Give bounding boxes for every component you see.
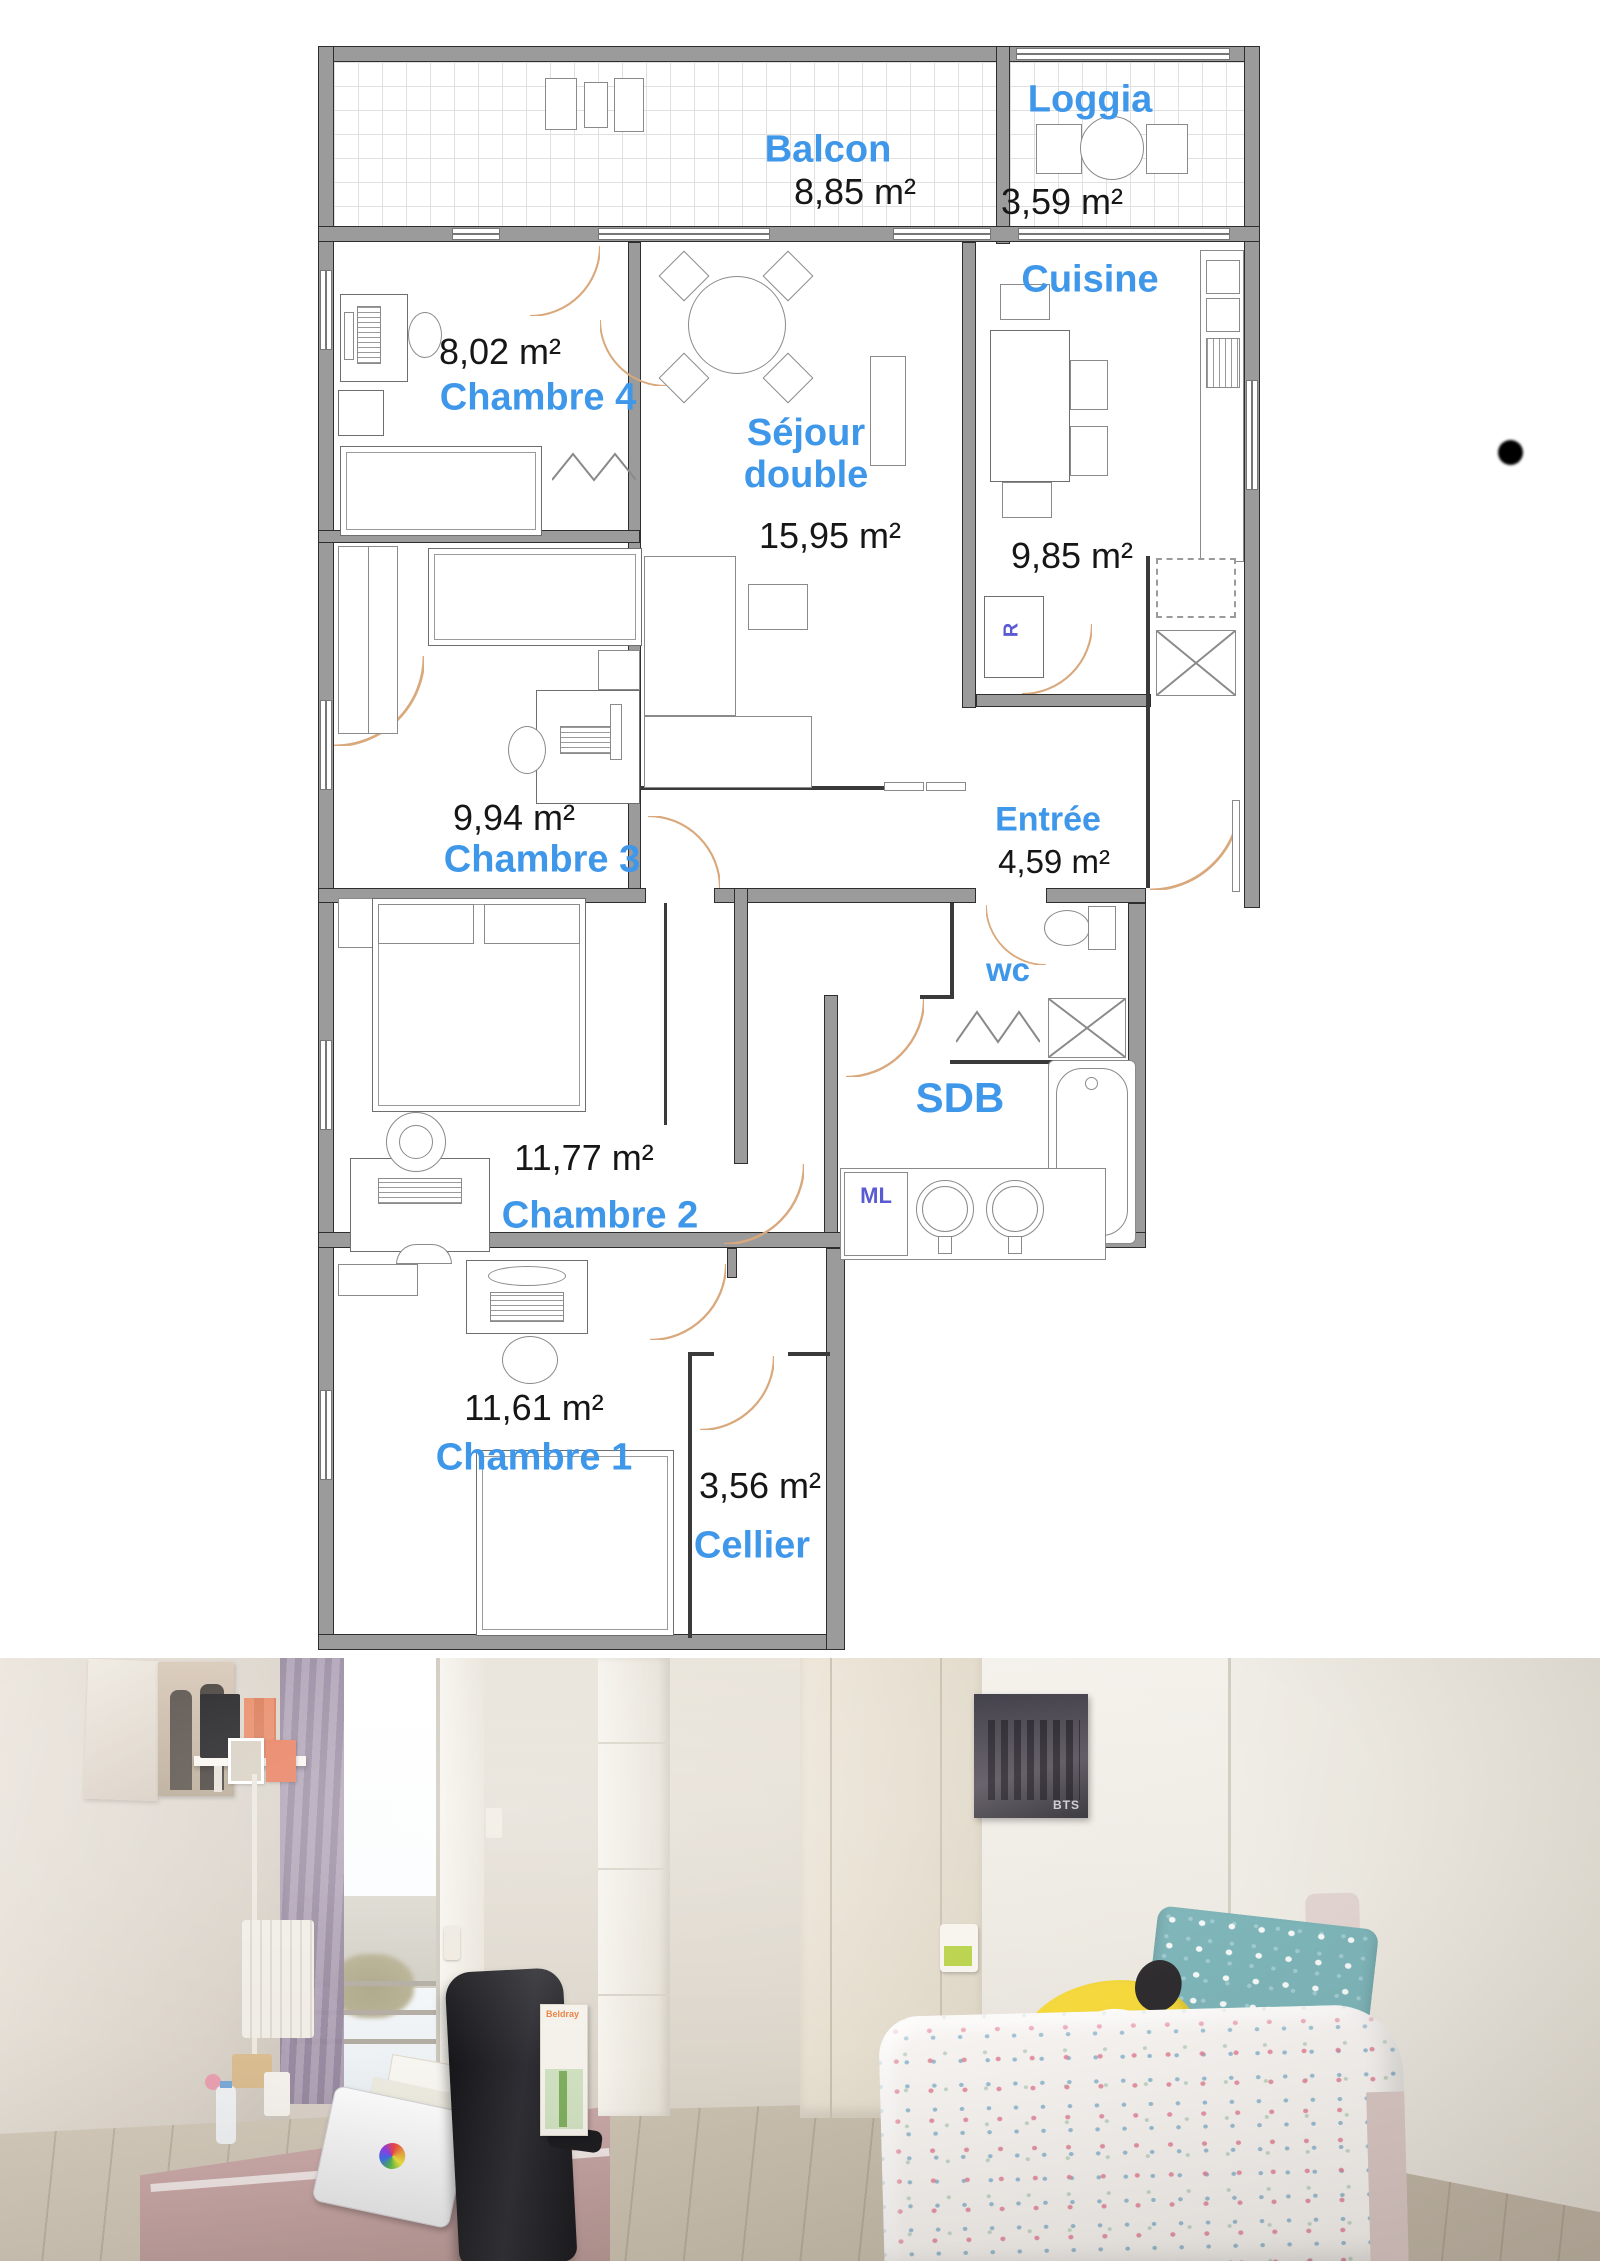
door-arc-sdb	[846, 999, 924, 1077]
room-label-sejour: Séjour double	[721, 413, 891, 497]
room-area-sejour: 15,95 m²	[759, 515, 901, 557]
kitchen-chair	[1070, 426, 1108, 476]
floral-duvet	[878, 2003, 1409, 2261]
room-area-loggia: 3,59 m²	[1001, 181, 1123, 223]
beldray-box: Beldray	[540, 2004, 588, 2136]
desk-chair	[408, 312, 442, 358]
desk	[350, 1158, 490, 1252]
room-label-chambre2: Chambre 2	[502, 1195, 698, 1238]
entry-door-leaf	[1232, 800, 1240, 892]
tall-cupboard	[598, 1658, 670, 2116]
room-area-chambre3: 9,94 m²	[453, 797, 575, 839]
shelf-bracket	[214, 1766, 222, 1792]
sink-basin	[1206, 260, 1240, 294]
dining-table-round	[688, 276, 786, 374]
door-arc-chambre4	[530, 246, 600, 316]
room-label-wc: wc	[986, 951, 1030, 989]
partition-chambre2-closet	[664, 903, 667, 1125]
monitor-icon	[610, 704, 622, 760]
window-chambre4	[452, 228, 500, 240]
washing-machine-annotation: ML	[860, 1183, 892, 1209]
window-handle	[444, 1926, 460, 1960]
window-chambre1-left	[320, 1390, 332, 1480]
room-label-entree: Entrée	[995, 801, 1101, 840]
window-sejour-balcony-2	[893, 228, 991, 240]
bed-single	[340, 446, 542, 536]
bed-frame-side	[1366, 2091, 1408, 2261]
sofa-chaise	[644, 716, 812, 788]
balcony-chair	[614, 78, 644, 132]
room-area-cuisine: 9,85 m²	[1011, 535, 1133, 577]
room-area-chambre2: 11,77 m²	[514, 1137, 653, 1179]
water-bottle	[216, 2086, 236, 2144]
sofa	[644, 556, 736, 716]
balcony-chair	[584, 82, 608, 128]
wall-sejour-cuisine	[962, 242, 976, 708]
kitchen-table	[990, 330, 1070, 482]
black-dot-mark	[1498, 440, 1523, 465]
window-sejour-balcony	[598, 228, 770, 240]
nightstand	[338, 390, 384, 436]
faucet-icon	[938, 1236, 952, 1254]
toilet-bowl	[1044, 910, 1090, 946]
laptop-sticker	[377, 2141, 408, 2172]
room-label-cuisine: Cuisine	[1021, 259, 1158, 302]
keyboard-icon	[560, 726, 616, 754]
wall-hall-top	[714, 888, 976, 903]
loggia-bench	[1036, 124, 1082, 174]
bts-poster: BTS	[974, 1694, 1088, 1818]
partition-sdb-top	[920, 995, 954, 999]
poster-pale	[84, 1659, 163, 1801]
pillow	[484, 904, 580, 944]
sink-basin	[986, 1180, 1044, 1238]
monitor-icon	[488, 1266, 566, 1286]
bottle-cap	[220, 2081, 232, 2088]
room-area-entree: 4,59 m²	[998, 843, 1110, 881]
closet-shelf	[338, 1264, 418, 1296]
room-label-loggia: Loggia	[1028, 79, 1153, 122]
balcony-chair	[545, 78, 577, 130]
keyboard-icon	[378, 1178, 462, 1204]
wall-sdb-left	[824, 995, 838, 1235]
window-loggia-top	[1016, 48, 1230, 60]
kitchen-chair	[1070, 360, 1108, 410]
bed-inner-line	[346, 452, 536, 530]
room-label-chambre3: Chambre 3	[444, 839, 640, 882]
window-cuisine-loggia	[1018, 228, 1230, 240]
photo-frame	[228, 1738, 264, 1784]
faucet-icon	[1008, 1236, 1022, 1254]
nightstand	[598, 650, 640, 690]
light-switch	[486, 1808, 502, 1838]
door-arc-cellier	[700, 1356, 774, 1430]
wardrobe	[338, 546, 398, 734]
desk-chair	[502, 1336, 558, 1384]
listing-page: Balcon 8,85 m² Loggia 3,59 m² Cuisine 9,…	[0, 0, 1600, 2261]
door-arc-hall	[648, 816, 720, 888]
album-orange	[266, 1740, 296, 1782]
kitchen-chair	[1002, 482, 1052, 518]
room-area-chambre1: 11,61 m²	[464, 1387, 603, 1429]
window-chambre2-left	[320, 1040, 332, 1130]
bed-single	[428, 548, 642, 646]
keyboard-icon	[357, 306, 381, 364]
radiator-zigzag	[956, 1004, 1040, 1048]
beldray-box-label: Beldray	[546, 2009, 579, 2019]
radiator	[242, 1920, 314, 2038]
cupboard-seam	[598, 1742, 670, 1744]
bed-inner-line	[482, 1456, 668, 1630]
window-chambre4-left	[320, 270, 332, 350]
wardrobe-seam	[830, 1658, 832, 2118]
bed-inner-line	[434, 554, 636, 640]
pillow	[378, 904, 474, 944]
room-area-chambre4: 8,02 m²	[439, 331, 561, 373]
green-mop	[559, 2071, 567, 2127]
stove-icon	[1206, 338, 1240, 388]
sejour-double-door-leaf-1	[884, 782, 924, 791]
stool	[396, 1244, 452, 1264]
wall-cellier-right	[826, 1248, 845, 1650]
appliance-space-dashed	[1156, 558, 1236, 618]
bts-poster-label: BTS	[1053, 1798, 1080, 1812]
toilet-tank	[1088, 906, 1116, 950]
room-label-chambre1: Chambre 1	[436, 1437, 632, 1480]
cupboard-seam	[598, 1994, 670, 1996]
window-cuisine-right	[1246, 380, 1258, 490]
radiator-zigzag	[552, 448, 636, 484]
coffee-table	[748, 584, 808, 630]
door-arc-entree	[1150, 800, 1240, 890]
desk-chair	[508, 726, 546, 774]
partition-cellier-top-b	[788, 1352, 830, 1356]
fridge-annotation: R	[1001, 623, 1024, 637]
wall-entree-bottom	[1046, 888, 1146, 903]
window-chambre3-left	[320, 700, 332, 790]
sink-basin	[1206, 298, 1240, 332]
room-label-chambre4: Chambre 4	[440, 377, 636, 420]
cup	[264, 2072, 290, 2116]
door-arc-chambre2	[724, 1164, 804, 1244]
sink-basin	[916, 1180, 974, 1238]
wall-cuisine-bottom	[976, 694, 1151, 707]
duct-shaft	[1156, 630, 1236, 696]
window-frame-edge	[436, 1658, 440, 2128]
wall-chambre2-right	[734, 888, 748, 1164]
wall-bottom	[318, 1634, 845, 1650]
keyboard-icon	[490, 1292, 564, 1322]
dining-chair	[659, 353, 710, 404]
cupboard-seam	[598, 1868, 670, 1870]
partition-cellier-left	[688, 1352, 692, 1638]
wall-stub-chambre1	[727, 1248, 737, 1278]
loggia-table	[1080, 116, 1144, 180]
bed-group	[875, 1891, 1425, 2261]
door-arc-chambre1	[650, 1264, 726, 1340]
kitchen-counter	[1200, 250, 1244, 562]
room-label-balcon: Balcon	[765, 129, 892, 172]
partition-wc-left	[950, 903, 954, 998]
loggia-bench	[1146, 124, 1188, 174]
room-label-sdb: SDB	[916, 1074, 1005, 1122]
room-area-balcon: 8,85 m²	[794, 171, 916, 213]
duct-shaft	[1048, 998, 1126, 1058]
poster-figures	[982, 1720, 1080, 1800]
sejour-double-door-leaf-2	[926, 782, 966, 791]
bedroom-photo: Beldray BTS	[0, 1658, 1600, 2261]
room-label-cellier: Cellier	[694, 1525, 810, 1568]
room-area-cellier: 3,56 m²	[699, 1465, 821, 1507]
plant-pot	[386, 1112, 446, 1172]
person-silhouette	[170, 1690, 192, 1790]
monitor-icon	[344, 312, 354, 360]
